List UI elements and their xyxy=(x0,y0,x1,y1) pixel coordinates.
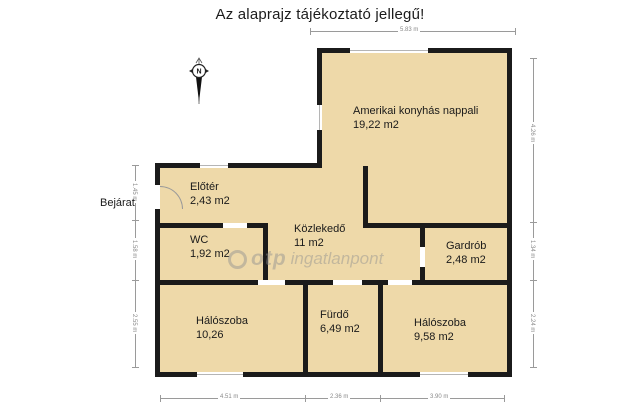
dimension-tick xyxy=(310,28,311,35)
dimension-label: 1.58 m xyxy=(131,238,137,260)
window-foyer xyxy=(200,163,228,168)
room-name: Közlekedő xyxy=(294,222,345,236)
bathroom-door-opening xyxy=(333,280,362,285)
dimension-label: 3.90 m xyxy=(428,394,450,400)
room-area: 19,22 m2 xyxy=(353,118,478,132)
dimension-label: 5.83 m xyxy=(398,27,420,33)
wall-foyer-wc xyxy=(155,223,268,228)
room-label-living: Amerikai konyhás nappali 19,22 m2 xyxy=(353,104,478,132)
room-area: 10,26 xyxy=(196,328,248,342)
window-top xyxy=(350,48,428,53)
dimension-label: 2.24 m xyxy=(529,312,535,334)
watermark-brand: otp xyxy=(251,247,287,271)
room-name: Gardrób xyxy=(446,239,486,253)
watermark: otp ingatlanpont xyxy=(228,247,383,271)
wall-living-bottom xyxy=(363,223,512,228)
room-name: Amerikai konyhás nappali xyxy=(353,104,478,118)
dimension-tick xyxy=(380,395,381,402)
window-bedroom2 xyxy=(420,372,468,377)
plan-title: Az alaprajz tájékoztató jellegű! xyxy=(20,6,620,23)
dimension-label: 2.36 m xyxy=(328,394,350,400)
floorplan-canvas: Az alaprajz tájékoztató jellegű! Amerika… xyxy=(0,0,640,413)
dimension-label: 2.55 m xyxy=(131,312,137,334)
wall-living-stub xyxy=(363,166,368,228)
room-area: 1,92 m2 xyxy=(190,247,230,261)
room-label-wardrobe: Gardrób 2,48 m2 xyxy=(446,239,486,267)
room-area: 2,48 m2 xyxy=(446,253,486,267)
room-label-bathroom: Fürdő 6,49 m2 xyxy=(320,308,360,336)
dimension-tick xyxy=(530,222,537,223)
wall-bedroom1-bath xyxy=(303,280,308,377)
north-compass-icon: N xyxy=(186,56,212,106)
room-area: 6,49 m2 xyxy=(320,322,360,336)
dimension-tick xyxy=(504,395,505,402)
watermark-logo-icon xyxy=(228,250,247,269)
room-name: WC xyxy=(190,233,230,247)
wall-right xyxy=(507,48,512,377)
dimension-tick xyxy=(530,58,537,59)
wardrobe-door-opening xyxy=(420,247,425,267)
room-label-hallway: Közlekedő 11 m2 xyxy=(294,222,345,250)
watermark-suffix: ingatlanpont xyxy=(291,249,384,269)
dimension-tick xyxy=(132,280,139,281)
dimension-label: 4.26 m xyxy=(529,122,535,144)
dimension-tick xyxy=(305,395,306,402)
bedroom2-door-opening xyxy=(388,280,412,285)
room-label-foyer: Előtér 2,43 m2 xyxy=(190,180,230,208)
room-name: Hálószoba xyxy=(414,316,466,330)
room-area: 9,58 m2 xyxy=(414,330,466,344)
dimension-tick xyxy=(132,220,139,221)
wall-upper-left xyxy=(155,163,322,168)
compass-letter: N xyxy=(196,69,201,76)
window-living-left xyxy=(317,105,322,130)
room-label-bedroom1: Hálószoba 10,26 xyxy=(196,314,248,342)
dimension-tick xyxy=(132,367,139,368)
dimension-tick xyxy=(515,28,516,35)
room-name: Hálószoba xyxy=(196,314,248,328)
bedroom1-door-opening xyxy=(258,280,285,285)
dimension-tick xyxy=(132,165,139,166)
dimension-tick xyxy=(160,395,161,402)
dimension-label: 4.51 m xyxy=(218,394,240,400)
wc-door-opening xyxy=(223,223,247,228)
room-label-wc: WC 1,92 m2 xyxy=(190,233,230,261)
dimension-label: 1.34 m xyxy=(529,238,535,260)
room-label-bedroom2: Hálószoba 9,58 m2 xyxy=(414,316,466,344)
room-area: 2,43 m2 xyxy=(190,194,230,208)
dimension-tick xyxy=(530,367,537,368)
window-bedroom1 xyxy=(197,372,243,377)
room-name: Előtér xyxy=(190,180,230,194)
entrance-label: Bejárat xyxy=(100,197,135,209)
wall-bath-bedroom2 xyxy=(378,280,383,377)
dimension-tick xyxy=(530,280,537,281)
room-name: Fürdő xyxy=(320,308,360,322)
